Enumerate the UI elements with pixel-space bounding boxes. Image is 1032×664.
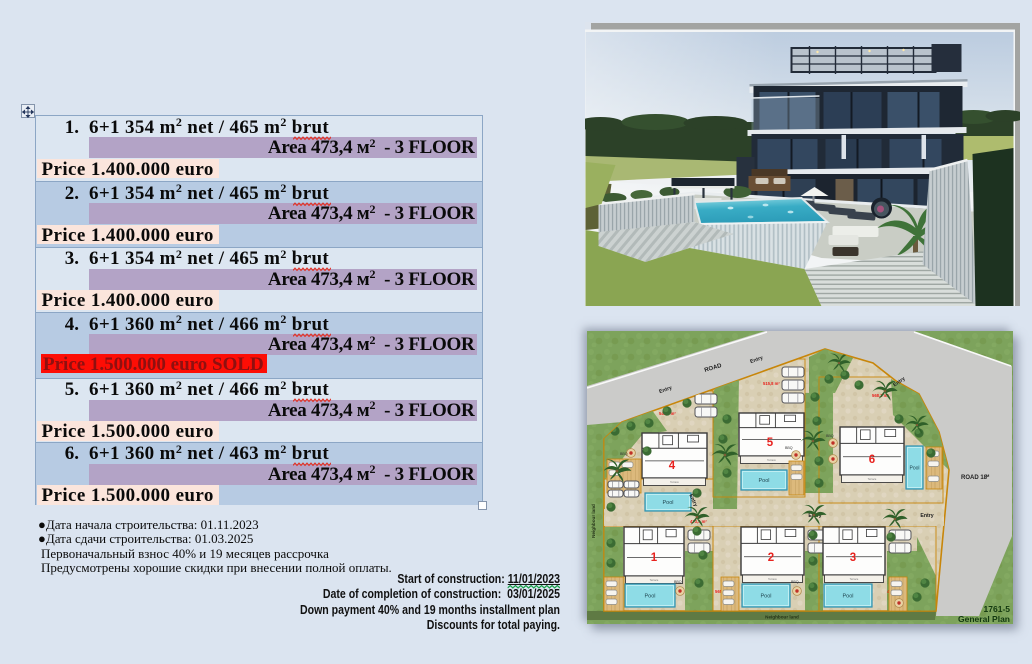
svg-text:515,8 m²: 515,8 m² xyxy=(763,381,780,386)
svg-text:Neighbour land: Neighbour land xyxy=(765,615,799,620)
svg-text:Pool: Pool xyxy=(758,478,769,484)
svg-text:6: 6 xyxy=(869,454,875,466)
svg-text:Terrace: Terrace xyxy=(850,577,859,581)
svg-text:BBQ: BBQ xyxy=(674,580,682,584)
svg-text:Terrace: Terrace xyxy=(868,477,877,481)
svg-text:BBQ: BBQ xyxy=(791,580,799,584)
svg-text:3: 3 xyxy=(850,552,856,564)
svg-text:4: 4 xyxy=(669,460,676,472)
svg-text:Terrace: Terrace xyxy=(670,480,679,484)
svg-text:Pool: Pool xyxy=(842,594,853,600)
svg-text:General Plan: General Plan xyxy=(958,614,1010,624)
svg-text:2: 2 xyxy=(768,552,774,564)
svg-text:Terrace: Terrace xyxy=(768,577,777,581)
svg-text:1761-5: 1761-5 xyxy=(984,604,1011,614)
svg-text:1: 1 xyxy=(651,552,658,564)
svg-text:BBQ: BBQ xyxy=(785,446,793,450)
svg-text:Pool: Pool xyxy=(760,594,771,600)
svg-text:5: 5 xyxy=(767,437,774,449)
svg-text:Pool: Pool xyxy=(909,466,919,472)
svg-text:Pool: Pool xyxy=(662,500,673,506)
svg-text:Pool: Pool xyxy=(644,594,655,600)
svg-text:Neighbour land: Neighbour land xyxy=(591,504,596,538)
svg-text:Terrace: Terrace xyxy=(650,578,659,582)
svg-text:Terrace: Terrace xyxy=(767,458,776,462)
svg-text:BBQ: BBQ xyxy=(620,452,628,456)
svg-text:Entry: Entry xyxy=(920,513,933,519)
svg-text:ROAD 18: ROAD 18 xyxy=(961,475,988,481)
svg-text:BBQ: BBQ xyxy=(826,434,834,438)
